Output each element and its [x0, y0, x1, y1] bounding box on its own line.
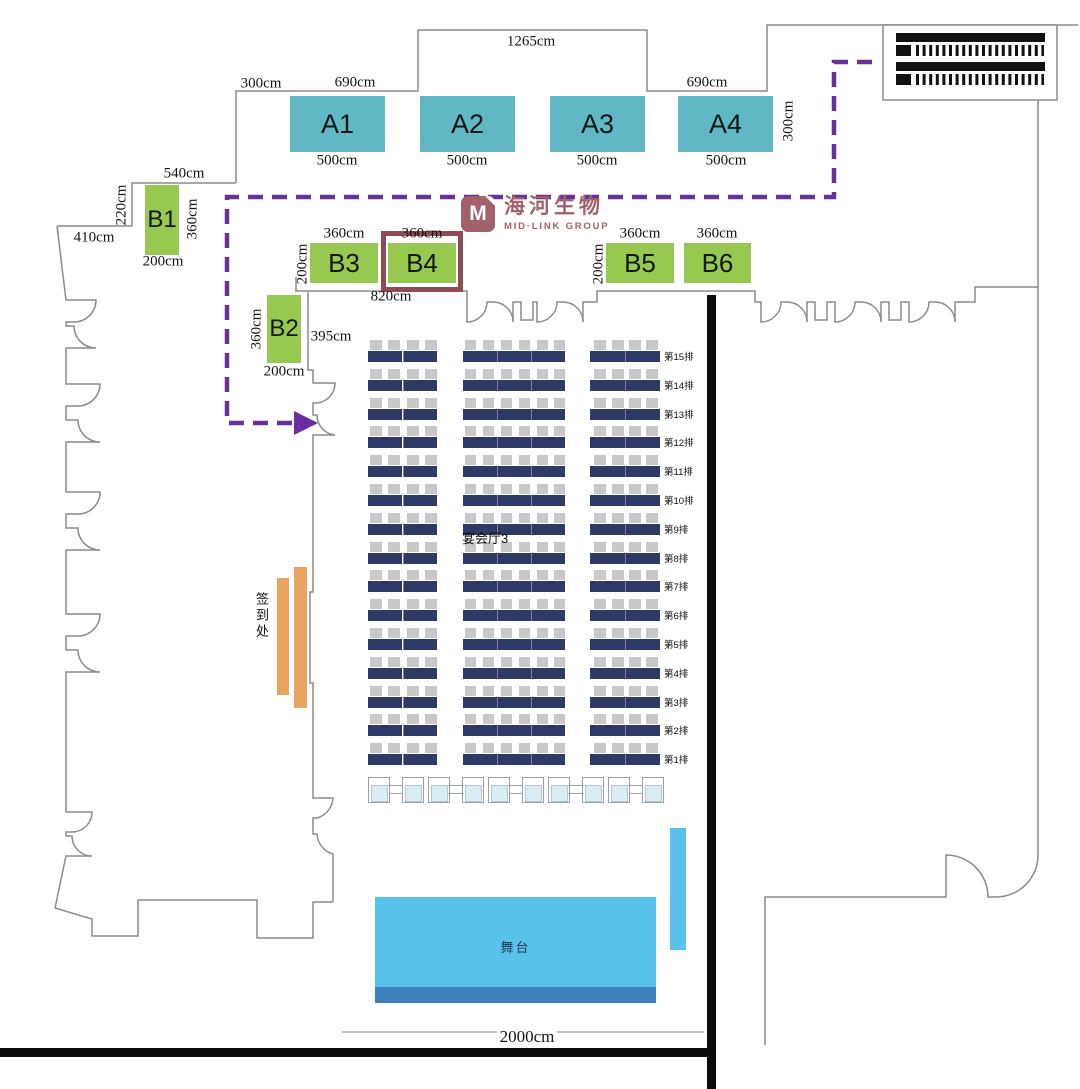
banquet-table	[531, 639, 565, 650]
wall-hall-left-doors	[308, 292, 335, 902]
banquet-table	[497, 466, 531, 477]
chair	[612, 599, 624, 609]
chair	[465, 570, 476, 580]
chair	[594, 369, 606, 379]
table-connector	[629, 785, 643, 794]
chair	[594, 426, 606, 436]
banquet-table	[531, 351, 565, 362]
chair	[537, 542, 548, 552]
chair	[388, 455, 400, 465]
dim-b4-top: 360cm	[402, 226, 443, 243]
chair	[501, 426, 512, 436]
row-label: 第11排	[664, 464, 693, 478]
banquet-table	[531, 495, 565, 506]
chair	[370, 570, 382, 580]
reception-table-pair	[428, 777, 485, 804]
chair	[537, 657, 548, 667]
dim-a3-size: 500cm	[577, 153, 618, 170]
table-connector	[509, 785, 523, 794]
banquet-table	[403, 754, 437, 765]
banquet-table	[590, 610, 625, 621]
chair	[407, 657, 419, 667]
chair	[501, 398, 512, 408]
banquet-table	[590, 524, 625, 535]
dim-hall-width: 2000cm	[500, 1027, 555, 1047]
chair	[554, 484, 565, 494]
chair	[388, 743, 400, 753]
row-label: 第2排	[664, 723, 688, 737]
chair	[425, 628, 437, 638]
banquet-table	[590, 639, 625, 650]
banquet-table	[625, 495, 660, 506]
chair	[646, 570, 658, 580]
dim-b2-wall: 395cm	[311, 329, 352, 346]
chair	[594, 484, 606, 494]
chair	[483, 426, 494, 436]
banquet-table	[590, 581, 625, 592]
banquet-table	[497, 754, 531, 765]
chair	[388, 426, 400, 436]
banquet-table	[403, 553, 437, 564]
dim-a2-size: 500cm	[447, 153, 488, 170]
chair	[483, 657, 494, 667]
dim-b3-side: 200cm	[295, 244, 312, 285]
stage-label: 舞台	[375, 937, 656, 956]
booth-label: B1	[147, 206, 176, 234]
reception-table	[402, 777, 424, 803]
banquet-table	[463, 466, 497, 477]
chair	[629, 628, 641, 638]
seat-row: 第10排	[368, 484, 708, 506]
partition-bar-bottom	[0, 1048, 716, 1057]
stage: 舞台	[375, 897, 656, 1003]
chair	[594, 340, 606, 350]
banquet-table	[403, 610, 437, 621]
banquet-table	[625, 754, 660, 765]
seat-row: 第14排	[368, 369, 708, 391]
chair	[612, 398, 624, 408]
seat-row: 第1排	[368, 743, 708, 765]
banquet-table	[590, 668, 625, 679]
chair	[646, 455, 658, 465]
chair	[594, 657, 606, 667]
dim-a-right: 300cm	[781, 101, 798, 142]
chair	[594, 513, 606, 523]
banquet-table	[531, 553, 565, 564]
chair	[370, 455, 382, 465]
chair	[537, 513, 548, 523]
chair	[537, 570, 548, 580]
chair	[629, 369, 641, 379]
chair	[483, 455, 494, 465]
chair	[612, 657, 624, 667]
chair	[537, 340, 548, 350]
banquet-table	[625, 668, 660, 679]
banquet-table	[368, 639, 402, 650]
chair	[501, 513, 512, 523]
booth-label: A2	[451, 109, 484, 140]
chair	[519, 686, 530, 696]
seat-row: 第12排	[368, 426, 708, 448]
chair	[646, 513, 658, 523]
banquet-table	[531, 581, 565, 592]
banquet-table	[531, 697, 565, 708]
chair	[465, 599, 476, 609]
chair	[537, 686, 548, 696]
chair	[554, 657, 565, 667]
chair	[388, 542, 400, 552]
banquet-table	[497, 639, 531, 650]
chair	[407, 455, 419, 465]
chair	[629, 686, 641, 696]
seat-row: 第5排	[368, 628, 708, 650]
chair	[612, 484, 624, 494]
booth-b1: B1	[145, 185, 179, 255]
chair	[554, 628, 565, 638]
chair	[425, 657, 437, 667]
chair	[425, 426, 437, 436]
dim-a1-size: 500cm	[317, 153, 358, 170]
banquet-table	[463, 437, 497, 448]
row-label: 第10排	[664, 493, 694, 507]
banquet-table	[531, 380, 565, 391]
banquet-table	[403, 409, 437, 420]
banquet-table	[463, 754, 497, 765]
chair	[612, 714, 624, 724]
dim-b1-w: 200cm	[143, 254, 184, 271]
chair	[388, 657, 400, 667]
chair	[388, 570, 400, 580]
chair	[465, 340, 476, 350]
chair	[629, 398, 641, 408]
banquet-table	[590, 437, 625, 448]
chair	[594, 455, 606, 465]
chair	[425, 398, 437, 408]
chair	[519, 743, 530, 753]
chair	[425, 340, 437, 350]
reception-table-pair	[488, 777, 545, 804]
dim-b3-top: 360cm	[324, 226, 365, 243]
chair	[465, 426, 476, 436]
banquet-table	[368, 495, 402, 506]
banquet-table	[497, 437, 531, 448]
banquet-table	[625, 380, 660, 391]
booth-b5: B5	[606, 243, 674, 283]
chair	[501, 484, 512, 494]
row-label: 第6排	[664, 608, 688, 622]
chair	[629, 599, 641, 609]
booth-label: A1	[321, 109, 354, 140]
banquet-table	[497, 380, 531, 391]
chair	[465, 398, 476, 408]
banquet-table	[403, 466, 437, 477]
chair	[388, 513, 400, 523]
logo-mark-letter: M	[469, 202, 487, 226]
chair	[407, 570, 419, 580]
chair	[537, 628, 548, 638]
reception-table	[462, 777, 484, 803]
chair	[594, 686, 606, 696]
chair	[554, 570, 565, 580]
chair	[407, 369, 419, 379]
chair	[554, 542, 565, 552]
dim-b1-h: 360cm	[185, 199, 202, 240]
chair	[537, 599, 548, 609]
signin-desk-bar	[277, 578, 289, 695]
chair	[407, 628, 419, 638]
chair	[554, 513, 565, 523]
banquet-table	[497, 351, 531, 362]
chair	[537, 398, 548, 408]
banquet-table	[590, 466, 625, 477]
chair	[465, 657, 476, 667]
chair	[646, 542, 658, 552]
banquet-table	[590, 754, 625, 765]
banquet-table	[463, 495, 497, 506]
dim-a-span1: 690cm	[335, 75, 376, 92]
dim-b1-side: 220cm	[114, 185, 131, 226]
chair	[519, 426, 530, 436]
reception-table-pair	[548, 777, 605, 804]
chair	[629, 657, 641, 667]
chair	[425, 743, 437, 753]
seat-row: 第15排	[368, 340, 708, 362]
chair	[537, 714, 548, 724]
chair	[483, 340, 494, 350]
chair	[629, 484, 641, 494]
chair	[612, 369, 624, 379]
chair	[501, 340, 512, 350]
banquet-table	[463, 380, 497, 391]
banquet-table	[590, 351, 625, 362]
chair	[388, 686, 400, 696]
banquet-table	[368, 725, 402, 736]
banquet-table	[625, 351, 660, 362]
banquet-table	[368, 437, 402, 448]
chair	[612, 570, 624, 580]
booth-label: A3	[581, 109, 614, 140]
chair	[629, 513, 641, 523]
chair	[646, 340, 658, 350]
chair	[554, 455, 565, 465]
chair	[465, 628, 476, 638]
banquet-table	[625, 553, 660, 564]
reception-table	[522, 777, 544, 803]
stage-front-edge	[375, 987, 656, 1003]
chair	[501, 628, 512, 638]
banquet-table	[403, 437, 437, 448]
dim-outer-wall: 410cm	[74, 230, 115, 247]
chair	[407, 686, 419, 696]
chair	[483, 369, 494, 379]
chair	[465, 484, 476, 494]
chair	[554, 426, 565, 436]
banquet-table	[368, 409, 402, 420]
table-connector	[449, 785, 463, 794]
booth-label: B5	[624, 248, 656, 279]
reception-table	[548, 777, 570, 803]
chair	[407, 398, 419, 408]
chair	[646, 686, 658, 696]
banquet-table	[463, 351, 497, 362]
booth-label: B2	[269, 315, 298, 343]
banquet-table	[531, 754, 565, 765]
partition-bar-vertical	[707, 295, 716, 1089]
chair	[388, 484, 400, 494]
banquet-table	[368, 524, 402, 535]
chair	[465, 513, 476, 523]
chair	[537, 743, 548, 753]
chair	[407, 426, 419, 436]
chair	[501, 743, 512, 753]
table-connector	[569, 785, 583, 794]
chair	[519, 714, 530, 724]
banquet-table	[368, 668, 402, 679]
banquet-table	[590, 380, 625, 391]
chair	[646, 484, 658, 494]
reception-table	[428, 777, 450, 803]
banquet-table	[368, 351, 402, 362]
chair	[465, 743, 476, 753]
banquet-table	[590, 697, 625, 708]
chair	[483, 570, 494, 580]
chair	[519, 513, 530, 523]
booth-b6: B6	[684, 243, 751, 283]
chair	[370, 599, 382, 609]
dim-b5-top: 360cm	[620, 226, 661, 243]
chair	[554, 599, 565, 609]
chair	[370, 369, 382, 379]
chair	[465, 369, 476, 379]
dim-b34-wall: 820cm	[371, 289, 412, 306]
banquet-table	[531, 668, 565, 679]
chair	[388, 714, 400, 724]
chair	[407, 743, 419, 753]
banquet-table	[403, 697, 437, 708]
banquet-table	[625, 697, 660, 708]
banquet-table	[368, 553, 402, 564]
chair	[646, 714, 658, 724]
logo-name-en: MID·LINK GROUP	[504, 221, 609, 232]
chair	[501, 686, 512, 696]
banquet-table	[403, 725, 437, 736]
chair	[425, 542, 437, 552]
banquet-table	[463, 725, 497, 736]
banquet-table	[497, 725, 531, 736]
chair	[425, 570, 437, 580]
chair	[537, 369, 548, 379]
row-label: 第5排	[664, 637, 688, 651]
banquet-table	[625, 524, 660, 535]
logo-name-cn: 海河生物	[504, 196, 609, 217]
row-label: 第7排	[664, 579, 688, 593]
reception-table	[642, 777, 664, 803]
banquet-table	[463, 553, 497, 564]
banquet-table	[403, 639, 437, 650]
banquet-table	[403, 495, 437, 506]
banquet-table	[590, 725, 625, 736]
dim-a-left: 300cm	[241, 76, 282, 93]
banquet-table	[403, 380, 437, 391]
chair	[370, 743, 382, 753]
reception-table	[368, 777, 390, 803]
seat-row: 第11排	[368, 455, 708, 477]
chair	[370, 542, 382, 552]
floor-plan: A1 A2 A3 A4 B1 B2 B3 B4 B5 B6 1265cm 300…	[0, 0, 1080, 1089]
chair	[537, 426, 548, 436]
chair	[501, 369, 512, 379]
banquet-table	[625, 610, 660, 621]
chair	[519, 570, 530, 580]
chair	[646, 628, 658, 638]
chair	[370, 484, 382, 494]
row-label: 第3排	[664, 695, 688, 709]
banquet-table	[531, 725, 565, 736]
chair	[407, 340, 419, 350]
chair	[554, 398, 565, 408]
banquet-table	[403, 351, 437, 362]
banquet-table	[497, 697, 531, 708]
chair	[388, 398, 400, 408]
chair	[407, 484, 419, 494]
row-label: 第13排	[664, 407, 694, 421]
chair	[483, 743, 494, 753]
dim-b2-w: 200cm	[264, 364, 305, 381]
chair	[388, 340, 400, 350]
chair	[425, 599, 437, 609]
chair	[519, 657, 530, 667]
booth-label: B4	[406, 248, 438, 279]
chair	[370, 714, 382, 724]
booth-label: A4	[709, 109, 742, 140]
chair	[483, 628, 494, 638]
booth-a4: A4	[678, 96, 773, 152]
chair	[465, 686, 476, 696]
chair	[407, 599, 419, 609]
chair	[388, 628, 400, 638]
chair	[501, 657, 512, 667]
reception-table-pair	[608, 777, 665, 804]
chair	[629, 455, 641, 465]
chair	[483, 599, 494, 609]
banquet-table	[463, 581, 497, 592]
chair	[465, 714, 476, 724]
booth-b2: B2	[267, 295, 301, 363]
chair	[483, 484, 494, 494]
row-label: 第1排	[664, 752, 688, 766]
banquet-table	[531, 409, 565, 420]
chair	[612, 628, 624, 638]
banquet-table	[368, 380, 402, 391]
table-connector	[389, 785, 403, 794]
banquet-table	[463, 610, 497, 621]
brand-logo: M 海河生物 MID·LINK GROUP	[461, 196, 609, 232]
wall-left-outer-doors	[55, 226, 100, 908]
logo-mark-icon: M	[461, 196, 495, 232]
banquet-table	[368, 754, 402, 765]
chair	[425, 484, 437, 494]
chair	[407, 513, 419, 523]
seat-row: 第8排	[368, 542, 708, 564]
banquet-table	[463, 668, 497, 679]
chair	[594, 570, 606, 580]
reception-table	[488, 777, 510, 803]
chair	[370, 426, 382, 436]
banquet-table	[463, 697, 497, 708]
booth-a1: A1	[290, 96, 385, 152]
wall-bottom-left-steps	[55, 900, 333, 938]
chair	[554, 714, 565, 724]
